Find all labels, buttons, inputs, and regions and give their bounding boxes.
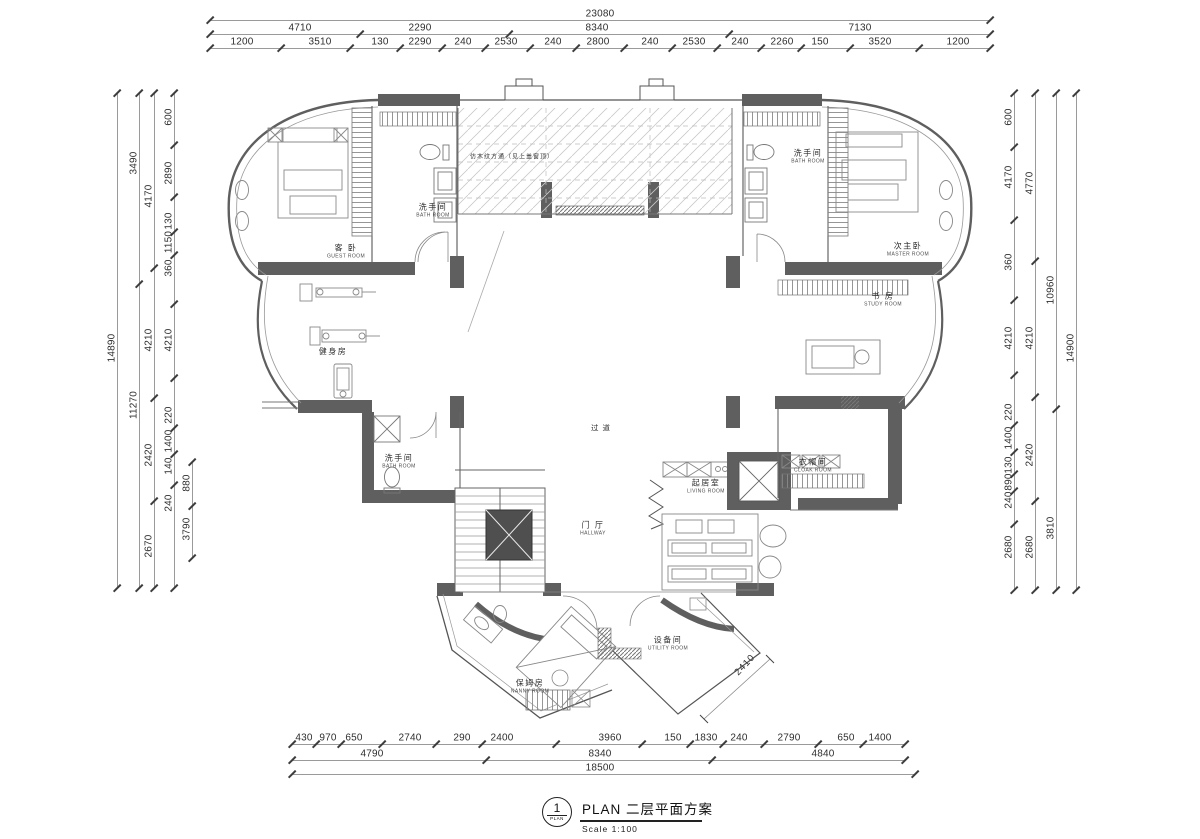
dim-label: 8340 — [588, 749, 611, 760]
room-label: 健身房 — [319, 347, 348, 357]
dim-label: 2420 — [1025, 443, 1036, 466]
dim-label: 4210 — [144, 328, 155, 351]
dim-label: 240 — [544, 37, 561, 48]
room-name-en: NANNY ROOM — [511, 689, 549, 696]
room-name-cn: 书 房 — [864, 292, 902, 302]
room-label: 洗手间BATH ROOM — [416, 203, 450, 220]
room-label: 门 厅HALLWAY — [580, 521, 606, 538]
room-label: 保姆房NANNY ROOM — [511, 679, 549, 696]
dim-line — [292, 774, 915, 775]
dim-label: 130 — [371, 37, 388, 48]
dim-label: 4210 — [164, 328, 175, 351]
dim-label: 140 — [164, 457, 175, 474]
dim-line — [210, 48, 990, 49]
room-label: 洗手间BATH ROOM — [791, 149, 825, 166]
room-name-cn: 健身房 — [319, 347, 348, 357]
dim-label: 18500 — [586, 763, 615, 774]
dim-label: 1150 — [164, 231, 175, 253]
dim-label: 430 — [295, 733, 312, 744]
dim-label: 240 — [730, 733, 747, 744]
plan-index-bubble: 1 PLAN — [542, 797, 572, 827]
dim-label: 4770 — [1025, 171, 1036, 194]
dim-label: 4210 — [1004, 326, 1015, 349]
room-label: 次主卧MASTER ROOM — [887, 242, 929, 259]
dim-label: 240 — [641, 37, 658, 48]
title-rule — [580, 820, 702, 822]
dim-label: 650 — [345, 733, 362, 744]
room-name-cn: 设备间 — [648, 636, 688, 646]
dim-label: 4710 — [288, 23, 311, 34]
dim-label: 2800 — [586, 37, 609, 48]
dim-tick — [1072, 586, 1080, 594]
dim-label: 2890 — [164, 161, 175, 184]
dim-label: 2290 — [408, 37, 431, 48]
plan-index-caption: PLAN — [550, 816, 564, 822]
dim-label: 4840 — [811, 749, 834, 760]
room-label: 起居室LIVING ROOM — [687, 479, 725, 496]
room-name-cn: 保姆房 — [511, 679, 549, 689]
dim-label: 240 — [454, 37, 471, 48]
dim-tick — [150, 584, 158, 592]
plan-title: PLAN 二层平面方案 — [580, 797, 717, 820]
dim-label: 3960 — [598, 733, 621, 744]
room-label: 设备间UTILITY ROOM — [648, 636, 688, 653]
dim-tick — [986, 16, 994, 24]
room-name-cn: 洗手间 — [382, 454, 416, 464]
dim-label: 4170 — [1004, 165, 1015, 188]
room-name-en: UTILITY ROOM — [648, 646, 688, 653]
floorplan-sheet: 2308047102290834071301200351013022902402… — [0, 0, 1200, 839]
dim-line — [292, 760, 905, 761]
dim-label: 240 — [1004, 491, 1015, 508]
dim-tick — [188, 554, 196, 562]
dim-label: 2420 — [144, 443, 155, 466]
labels-layer: 2308047102290834071301200351013022902402… — [0, 0, 1200, 839]
dim-label: 14890 — [107, 334, 118, 363]
plan-scale: Scale 1:100 — [580, 824, 717, 834]
dim-tick — [1031, 586, 1039, 594]
dim-label: 650 — [837, 733, 854, 744]
room-name-cn: 洗手间 — [416, 203, 450, 213]
dim-label: 240 — [164, 494, 175, 511]
dim-label: 3490 — [129, 151, 140, 174]
dim-label: 3510 — [308, 37, 331, 48]
dim-label: 10960 — [1046, 276, 1057, 305]
dim-tick — [986, 44, 994, 52]
dim-label: 360 — [164, 259, 175, 276]
annotation: 仿木纹方通（见上盖窗顶） — [470, 152, 554, 161]
room-name-en: STUDY ROOM — [864, 302, 902, 309]
dim-label: 290 — [453, 733, 470, 744]
dim-label: 890 — [1004, 473, 1015, 490]
dim-label: 2530 — [494, 37, 517, 48]
room-name-cn: 起居室 — [687, 479, 725, 489]
dim-label: 2400 — [490, 733, 513, 744]
dim-tick — [911, 770, 919, 778]
dim-label: 360 — [1004, 253, 1015, 270]
dim-label: 150 — [811, 37, 828, 48]
dim-tick — [901, 740, 909, 748]
dim-label: 4210 — [1025, 326, 1036, 349]
dim-line — [292, 744, 905, 745]
dim-label: 880 — [182, 474, 193, 491]
title-block: 1 PLAN PLAN 二层平面方案 Scale 1:100 — [542, 797, 717, 834]
dim-tick — [901, 756, 909, 764]
dim-label: 2790 — [777, 733, 800, 744]
room-label: 衣帽间CLOAK ROOM — [794, 458, 832, 475]
dim-label: 2670 — [144, 534, 155, 557]
dim-line — [210, 20, 990, 21]
dim-line — [1056, 93, 1057, 590]
annotation: 2410 — [732, 652, 757, 678]
dim-label: 1830 — [694, 733, 717, 744]
dim-tick — [113, 584, 121, 592]
room-label: 书 房STUDY ROOM — [864, 292, 902, 309]
dim-label: 240 — [731, 37, 748, 48]
room-name-en: LIVING ROOM — [687, 489, 725, 496]
room-name-en: BATH ROOM — [791, 159, 825, 166]
plan-index: 1 — [547, 802, 568, 816]
room-name-cn: 洗手间 — [791, 149, 825, 159]
dim-label: 2530 — [682, 37, 705, 48]
dim-label: 600 — [164, 108, 175, 125]
dim-label: 4170 — [144, 184, 155, 207]
dim-label: 2680 — [1004, 535, 1015, 558]
dim-label: 1400 — [164, 429, 175, 452]
room-label: 客 卧GUEST ROOM — [327, 244, 365, 261]
dim-label: 220 — [1004, 403, 1015, 420]
dim-label: 1400 — [868, 733, 891, 744]
dim-line — [210, 34, 990, 35]
dim-label: 3810 — [1046, 516, 1057, 539]
dim-label: 2260 — [770, 37, 793, 48]
dim-label: 600 — [1004, 108, 1015, 125]
dim-label: 23080 — [586, 9, 615, 20]
dim-label: 3520 — [868, 37, 891, 48]
dim-label: 130 — [1004, 456, 1015, 473]
room-name-en: GUEST ROOM — [327, 254, 365, 261]
room-name-en: BATH ROOM — [416, 213, 450, 220]
dim-tick — [135, 584, 143, 592]
dim-tick — [1010, 586, 1018, 594]
room-name-en: BATH ROOM — [382, 464, 416, 471]
dim-label: 3790 — [182, 517, 193, 540]
dim-label: 8340 — [585, 23, 608, 34]
dim-label: 14900 — [1066, 334, 1077, 363]
dim-tick — [170, 584, 178, 592]
dim-label: 130 — [164, 212, 175, 229]
dim-label: 220 — [164, 406, 175, 423]
dim-label: 1200 — [946, 37, 969, 48]
dim-label: 2740 — [398, 733, 421, 744]
room-name-en: CLOAK ROOM — [794, 468, 832, 475]
dim-tick — [1052, 586, 1060, 594]
dim-label: 970 — [319, 733, 336, 744]
room-name-cn: 门 厅 — [580, 521, 606, 531]
dim-label: 4790 — [360, 749, 383, 760]
dim-tick — [986, 30, 994, 38]
room-name-en: MASTER ROOM — [887, 252, 929, 259]
dim-label: 2680 — [1025, 535, 1036, 558]
annotation: 过 道 — [591, 423, 611, 434]
room-label: 洗手间BATH ROOM — [382, 454, 416, 471]
dim-label: 1400 — [1004, 426, 1015, 449]
dim-label: 150 — [664, 733, 681, 744]
dim-label: 2290 — [408, 23, 431, 34]
room-name-cn: 衣帽间 — [794, 458, 832, 468]
dim-label: 7130 — [848, 23, 871, 34]
dim-label: 1200 — [230, 37, 253, 48]
room-name-cn: 次主卧 — [887, 242, 929, 252]
room-name-cn: 客 卧 — [327, 244, 365, 254]
room-name-en: HALLWAY — [580, 531, 606, 538]
dim-label: 11270 — [129, 391, 140, 419]
